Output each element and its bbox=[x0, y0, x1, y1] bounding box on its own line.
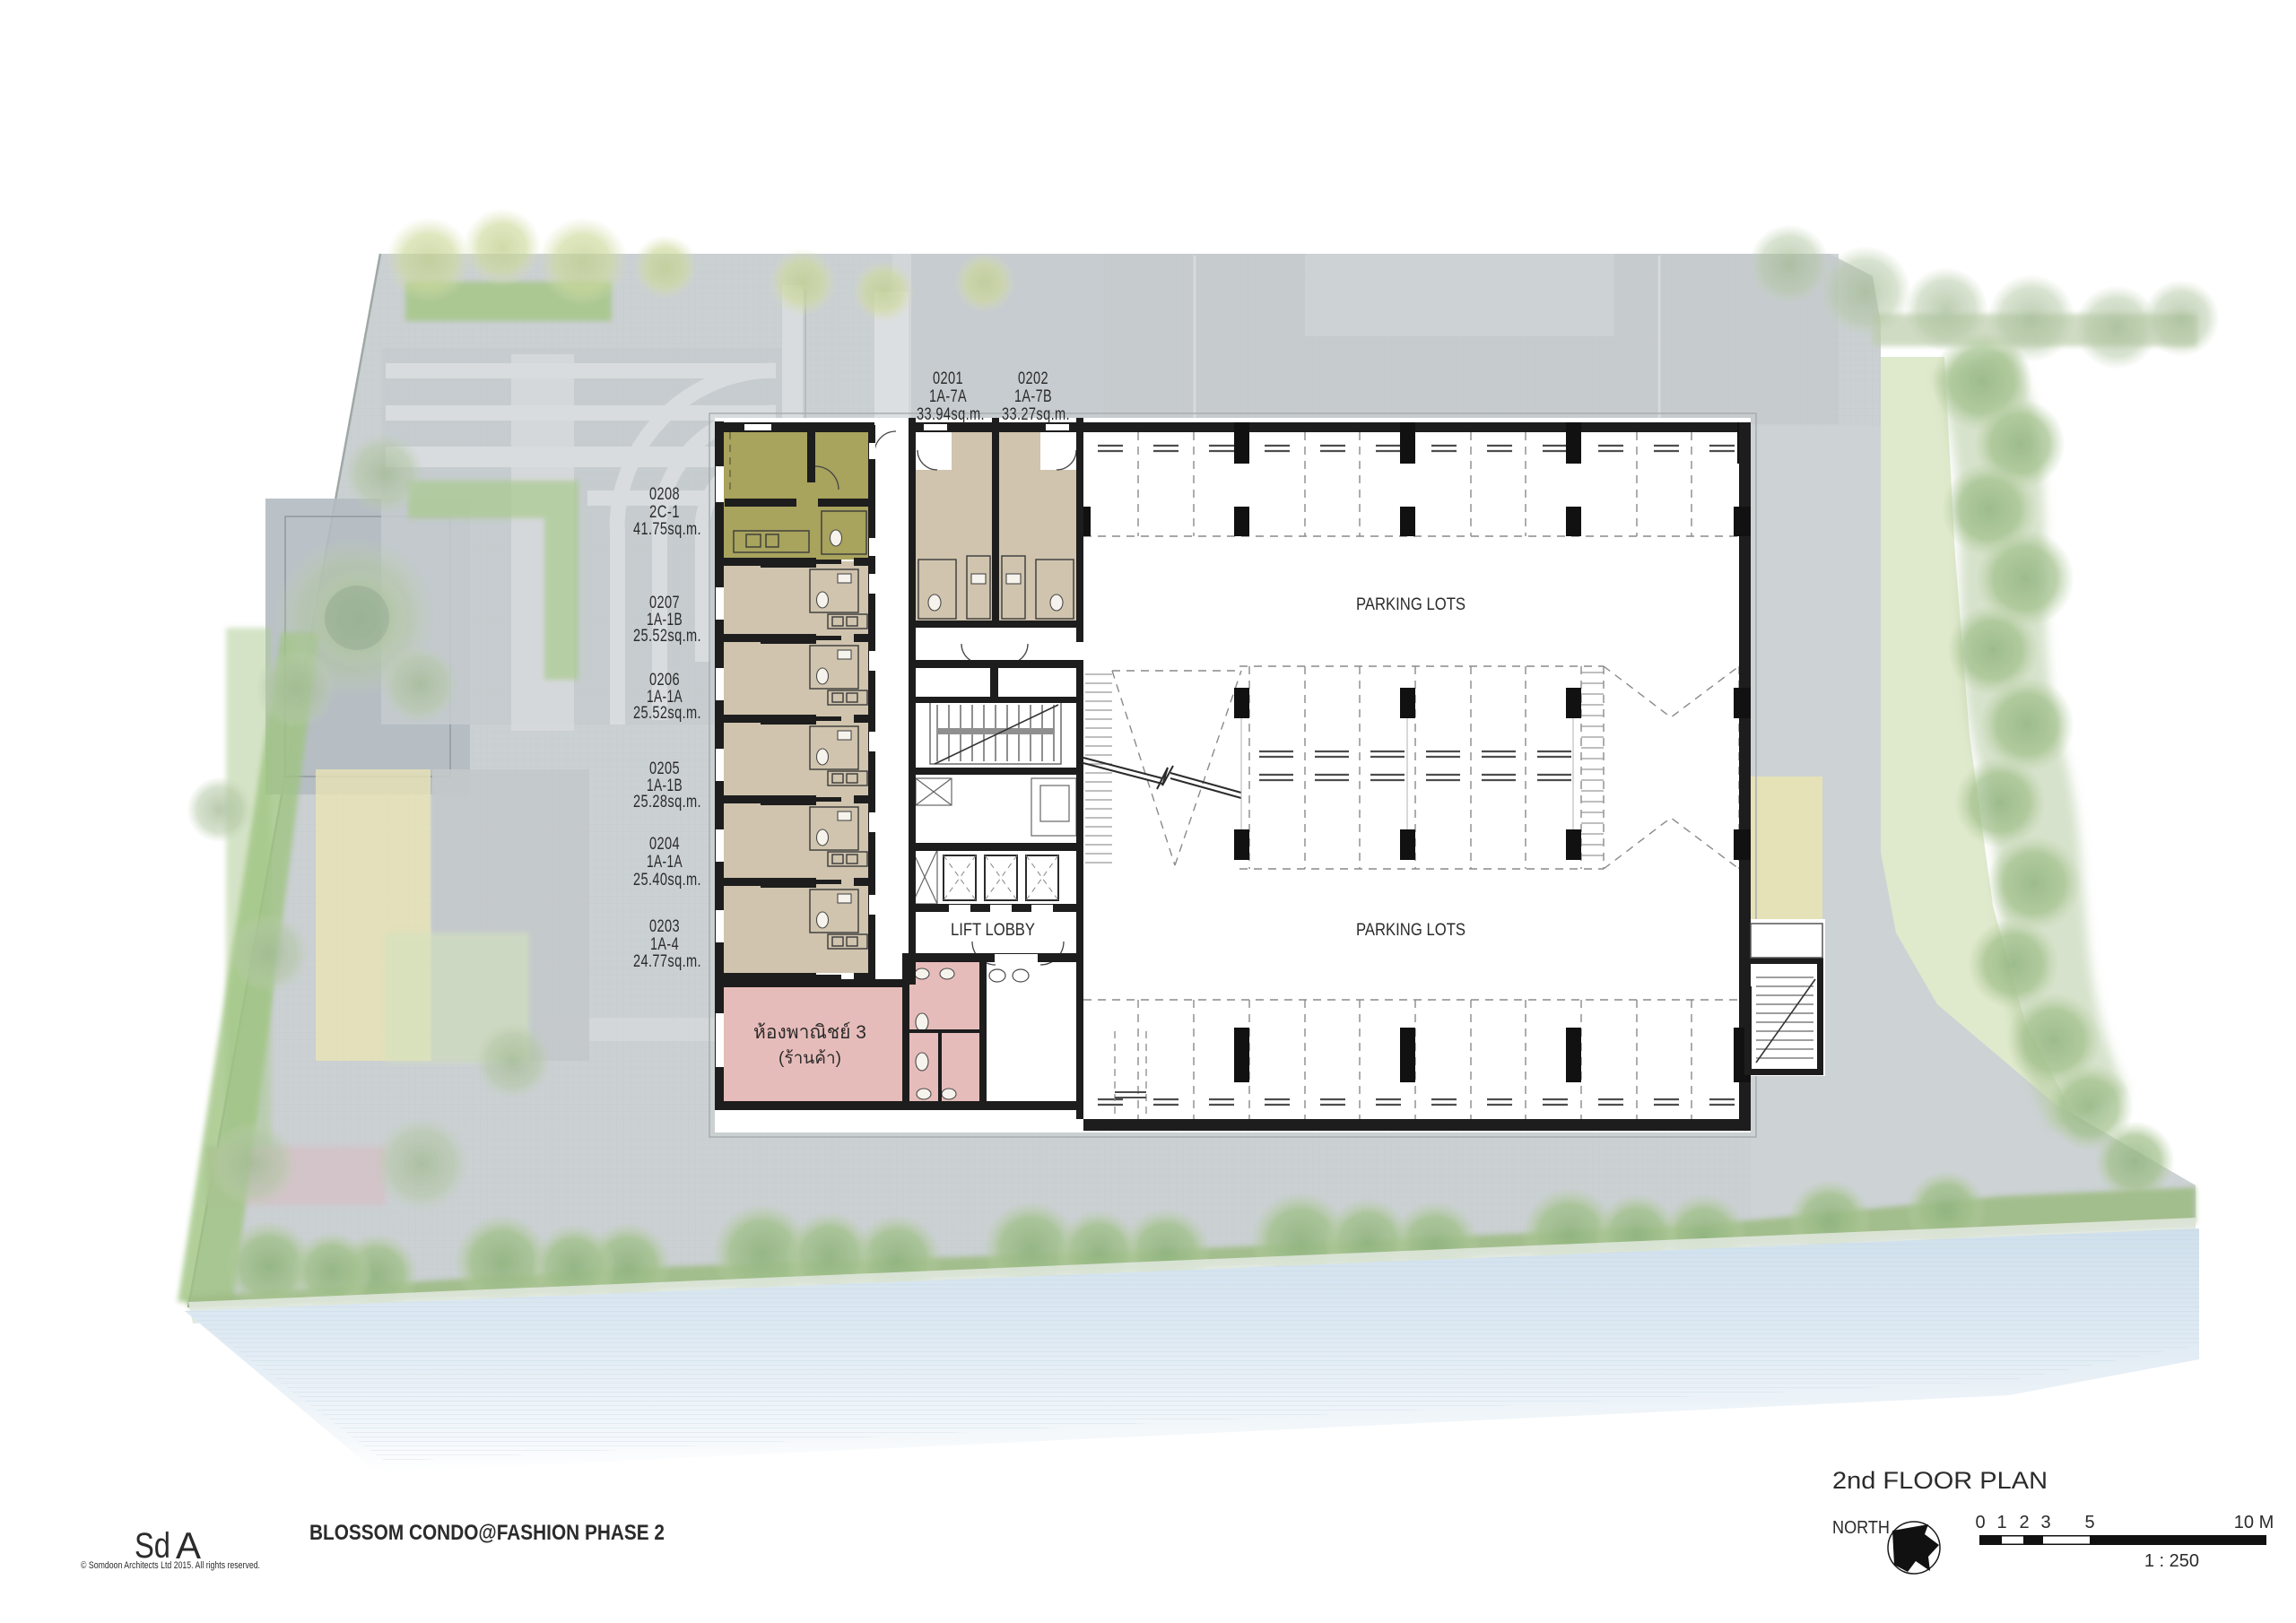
svg-text:(ร้านค้า): (ร้านค้า) bbox=[778, 1049, 841, 1068]
svg-text:3: 3 bbox=[2040, 1513, 2050, 1532]
svg-text:0204: 0204 bbox=[649, 835, 680, 854]
svg-text:2nd FLOOR PLAN: 2nd FLOOR PLAN bbox=[1832, 1467, 2048, 1494]
svg-text:1: 1 bbox=[1996, 1513, 2006, 1532]
svg-text:25.28sq.m.: 25.28sq.m. bbox=[633, 793, 701, 811]
svg-text:PARKING LOTS: PARKING LOTS bbox=[1356, 595, 1465, 614]
svg-text:1A-7A: 1A-7A bbox=[929, 387, 967, 406]
svg-text:0205: 0205 bbox=[649, 759, 680, 778]
svg-text:0201: 0201 bbox=[933, 369, 963, 388]
svg-text:0206: 0206 bbox=[649, 671, 680, 690]
svg-text:33.94sq.m.: 33.94sq.m. bbox=[917, 405, 985, 424]
svg-text:1A-7B: 1A-7B bbox=[1014, 387, 1052, 406]
svg-text:0203: 0203 bbox=[649, 917, 680, 936]
svg-text:PARKING LOTS: PARKING LOTS bbox=[1356, 921, 1465, 940]
svg-text:25.52sq.m.: 25.52sq.m. bbox=[633, 704, 701, 723]
svg-text:1A-4: 1A-4 bbox=[650, 935, 679, 954]
svg-text:LIFT LOBBY: LIFT LOBBY bbox=[951, 921, 1035, 940]
svg-text:© Somdoon Architects Ltd 2015.: © Somdoon Architects Ltd 2015. All right… bbox=[81, 1560, 260, 1571]
svg-text:2: 2 bbox=[2019, 1513, 2029, 1532]
svg-text:0202: 0202 bbox=[1018, 369, 1048, 388]
svg-text:25.40sq.m.: 25.40sq.m. bbox=[633, 871, 701, 890]
svg-text:0208: 0208 bbox=[649, 485, 680, 504]
svg-text:5: 5 bbox=[2084, 1513, 2094, 1532]
svg-text:1 : 250: 1 : 250 bbox=[2144, 1551, 2199, 1571]
svg-text:1A-1A: 1A-1A bbox=[647, 853, 683, 872]
svg-text:0: 0 bbox=[1975, 1513, 1985, 1532]
svg-text:24.77sq.m.: 24.77sq.m. bbox=[633, 952, 701, 971]
svg-text:33.27sq.m.: 33.27sq.m. bbox=[1002, 405, 1070, 424]
svg-text:41.75sq.m.: 41.75sq.m. bbox=[633, 520, 701, 539]
svg-text:BLOSSOM CONDO@FASHION PHASE 2: BLOSSOM CONDO@FASHION PHASE 2 bbox=[309, 1521, 665, 1545]
svg-text:25.52sq.m.: 25.52sq.m. bbox=[633, 627, 701, 646]
svg-text:ห้องพาณิชย์ 3: ห้องพาณิชย์ 3 bbox=[753, 1021, 866, 1043]
svg-text:10 M: 10 M bbox=[2234, 1513, 2274, 1532]
svg-text:2C-1: 2C-1 bbox=[649, 503, 680, 522]
svg-text:0207: 0207 bbox=[649, 594, 680, 612]
svg-text:NORTH: NORTH bbox=[1832, 1518, 1890, 1538]
